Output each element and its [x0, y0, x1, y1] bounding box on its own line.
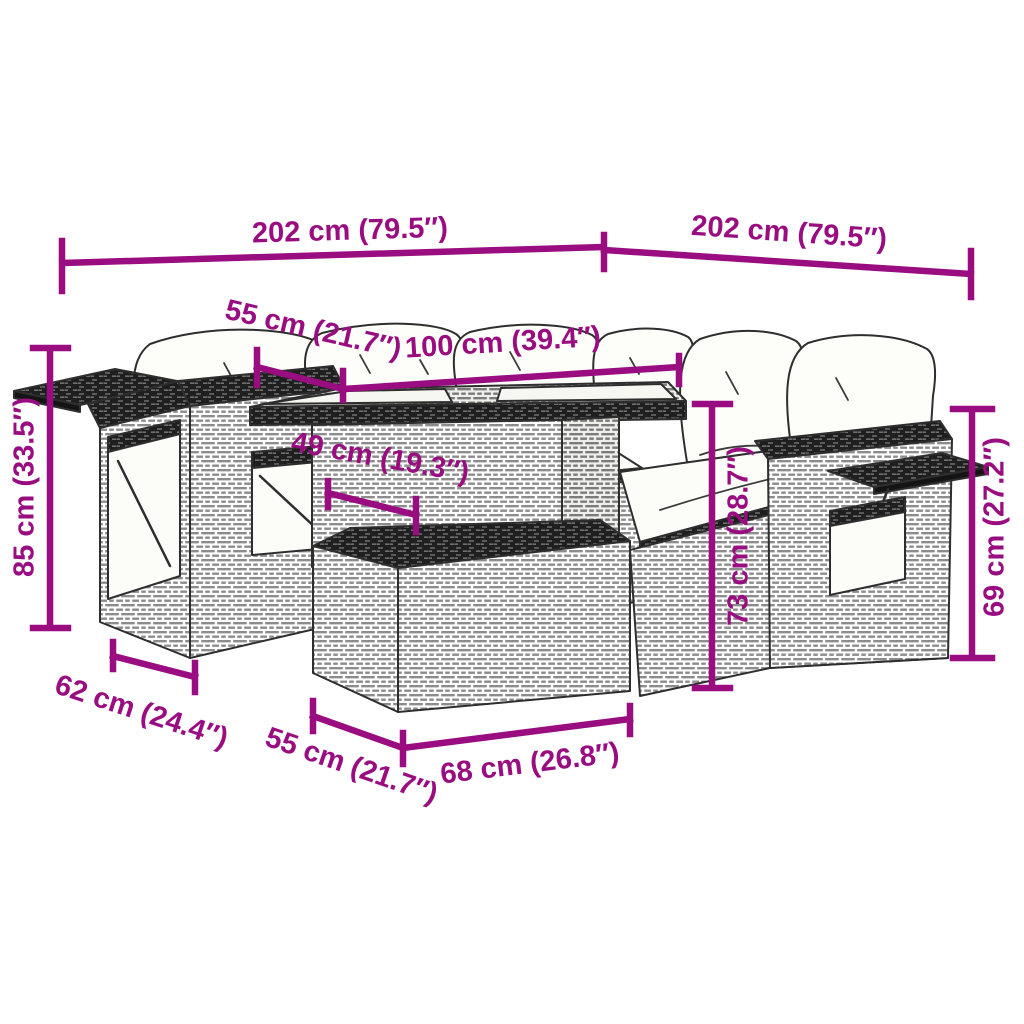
dimension-label: 202 cm (79.5″): [690, 210, 888, 256]
dimension-label: 85 cm (33.5″): [9, 397, 41, 577]
left-storage-opening: [108, 434, 180, 599]
dim-ottoman-depth: 55 cm (21.7″): [261, 701, 442, 810]
dimension-label: 55 cm (21.7″): [261, 721, 442, 810]
dimension-label: 69 cm (27.2″): [979, 437, 1011, 617]
dimension-label: 68 cm (26.8″): [439, 737, 621, 791]
dim-backrest-height: 69 cm (27.2″): [953, 409, 1011, 658]
dim-overall-width-left: 202 cm (79.5″): [62, 212, 604, 291]
dim-overall-width-right: 202 cm (79.5″): [604, 210, 971, 297]
dim-armrest-module-depth: 62 cm (24.4″): [51, 642, 232, 755]
product-dimension-diagram: 202 cm (79.5″) 202 cm (79.5″) 55 cm (21.…: [0, 0, 1024, 1024]
ottoman-left-face: [313, 546, 398, 712]
dimension-label: 202 cm (79.5″): [251, 212, 448, 250]
dimension-label: 73 cm (28.7″): [723, 446, 755, 626]
dimension-label: 62 cm (24.4″): [51, 669, 232, 755]
ottoman: [313, 520, 630, 712]
right-armrest-module: [755, 421, 988, 668]
ottoman-front-face: [398, 541, 630, 712]
diagram-svg: 202 cm (79.5″) 202 cm (79.5″) 55 cm (21.…: [0, 0, 1024, 1024]
table-glass-pane: [497, 384, 676, 401]
furniture-illustration: [14, 324, 988, 712]
dimension-line: [604, 250, 971, 297]
